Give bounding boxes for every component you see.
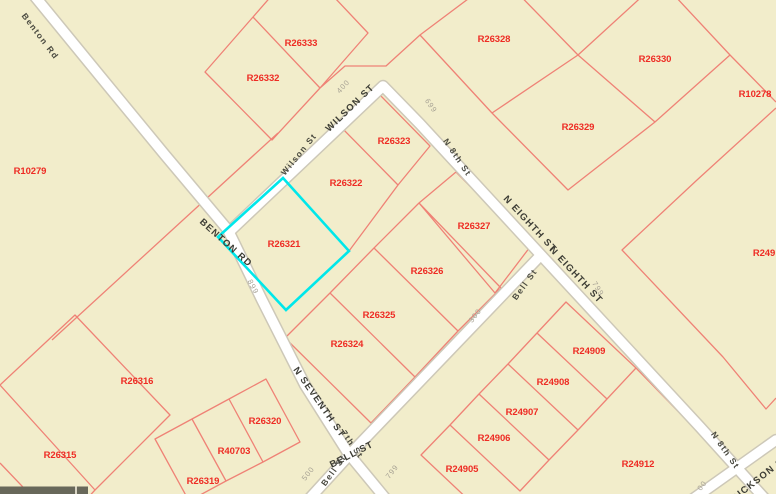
parcel-label-r26325: R26325 <box>363 310 396 321</box>
parcel-label-r26322: R26322 <box>330 178 363 189</box>
parcel-label-r26327: R26327 <box>458 221 491 232</box>
parcel-label-r26333: R26333 <box>285 38 318 49</box>
parcel-label-r24908: R24908 <box>537 377 570 388</box>
parcel-label-r10278: R10278 <box>739 89 772 100</box>
parcel-label-r26319: R26319 <box>187 476 220 487</box>
parcel-label-r26330: R26330 <box>639 54 672 65</box>
parcel-label-r26329: R26329 <box>562 122 595 133</box>
parcel-label-r24907: R24907 <box>506 407 539 418</box>
scale-bar <box>0 487 88 494</box>
parcel-label-r26316: R26316 <box>121 376 154 387</box>
parcel-label-r26328: R26328 <box>478 34 511 45</box>
parcel-label-r249: R249 <box>753 248 775 259</box>
parcel-label-r24906: R24906 <box>478 433 511 444</box>
parcel-label-r26321: R26321 <box>268 239 301 250</box>
parcel-label-r26320: R26320 <box>249 416 282 427</box>
parcel-label-r40703: R40703 <box>218 446 251 457</box>
parcel-label-r24909: R24909 <box>573 346 606 357</box>
parcel-label-r24905: R24905 <box>446 464 479 475</box>
parcel-label-r10279: R10279 <box>14 166 47 177</box>
parcel-label-r24912: R24912 <box>622 459 655 470</box>
parcel-label-r26324: R26324 <box>331 339 364 350</box>
parcel-label-r26323: R26323 <box>378 136 411 147</box>
parcel-map-canvas[interactable]: Benton RdBENTON RDWilson StWILSON STN 8t… <box>0 0 776 494</box>
parcel-label-r26332: R26332 <box>247 73 280 84</box>
parcel-label-r26326: R26326 <box>411 266 444 277</box>
parcel-label-r26315: R26315 <box>44 450 77 461</box>
